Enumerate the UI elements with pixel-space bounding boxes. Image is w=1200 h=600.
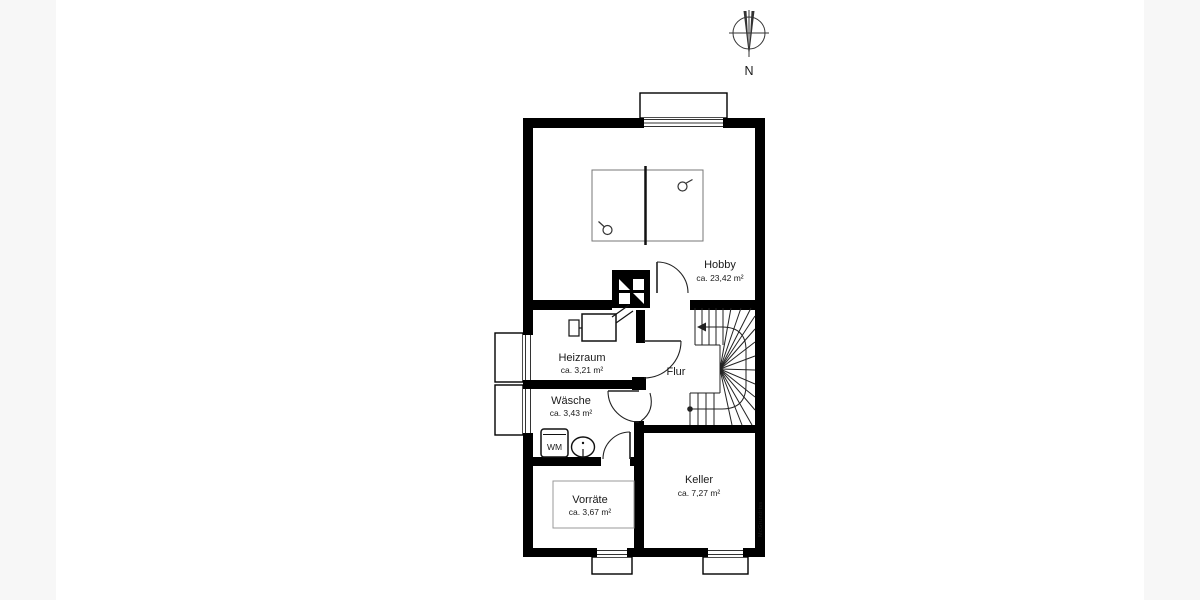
light-well-bottom-left [592, 557, 632, 574]
room-label-keller: Keller [685, 474, 713, 486]
sink-icon [572, 437, 595, 458]
room-area-vorraete: ca. 3,67 m² [569, 507, 612, 517]
room-label-flur: Flur [667, 366, 686, 378]
room-label-hobby: Hobby [704, 259, 736, 271]
window-top [644, 118, 723, 128]
light-well-left-upper [495, 333, 523, 382]
light-well-top [640, 93, 727, 118]
hobby-furniture [592, 166, 703, 245]
floor-plan-page: N [0, 0, 1200, 600]
compass-north-label: N [744, 64, 753, 78]
door-vorraete [603, 432, 630, 459]
washing-machine-label: WM [547, 442, 562, 452]
light-well-left-lower [495, 385, 523, 435]
lamp-icon [678, 180, 693, 192]
room-area-heizraum: ca. 3,21 m² [561, 365, 604, 375]
room-label-vorraete: Vorräte [572, 494, 607, 506]
room-area-keller: ca. 7,27 m² [678, 488, 721, 498]
room-area-hobby: ca. 23,42 m² [696, 273, 743, 283]
window-left-upper [523, 335, 533, 380]
window-bottom-left [597, 548, 627, 557]
watermark-text: McGrundriss [758, 501, 764, 537]
chimney-icon [612, 270, 650, 308]
window-left-lower [523, 389, 533, 433]
door-waesche [608, 391, 639, 422]
door-keller [641, 393, 651, 421]
boiler-icon [569, 305, 633, 341]
washing-machine-icon: WM [541, 429, 568, 457]
room-label-heizraum: Heizraum [558, 352, 605, 364]
lamp-icon [599, 222, 613, 235]
staircase [687, 308, 755, 425]
floor-plan-drawing: N [0, 0, 1200, 600]
room-label-waesche: Wäsche [551, 395, 591, 407]
light-well-bottom-right [703, 557, 748, 574]
window-bottom-right [708, 548, 743, 557]
door-hobby [657, 262, 688, 293]
compass-icon [729, 10, 769, 57]
interior-walls [533, 300, 755, 548]
room-area-waesche: ca. 3,43 m² [550, 408, 593, 418]
